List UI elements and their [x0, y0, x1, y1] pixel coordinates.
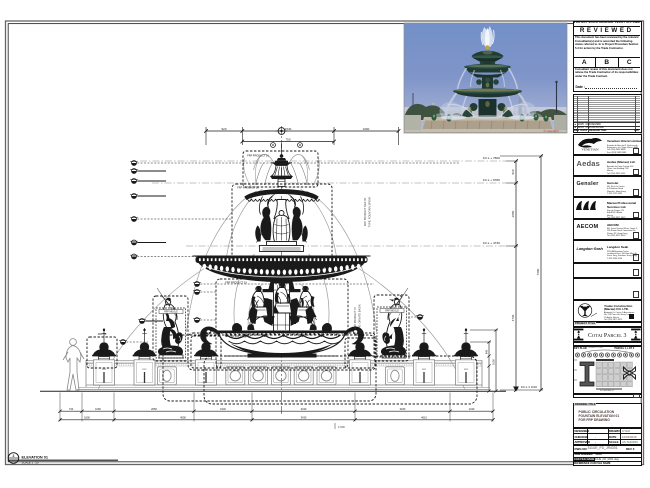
svg-text:TYPE: ORNATE BASIN: TYPE: ORNATE BASIN	[358, 304, 362, 331]
svg-text:2050: 2050	[511, 210, 515, 217]
svg-text:© copyright: © copyright	[543, 129, 558, 133]
svg-text:FRP MOULD: FRP MOULD	[385, 311, 399, 313]
svg-text:FRP: FRP	[422, 369, 427, 371]
svg-text:7600: 7600	[536, 268, 540, 275]
svg-text:FRP 05: FRP 05	[98, 333, 107, 336]
svg-text:1430: 1430	[469, 407, 475, 411]
svg-text:2650: 2650	[151, 407, 157, 411]
svg-text:F.F.L + 6780: F.F.L + 6780	[483, 178, 500, 182]
svg-text:3430: 3430	[301, 407, 307, 411]
svg-text:FRP PRODUCT 06: FRP PRODUCT 06	[229, 336, 251, 339]
svg-text:2: 2	[13, 454, 15, 458]
svg-text:FRP MOULD: FRP MOULD	[164, 312, 178, 314]
svg-text:1060: 1060	[95, 407, 101, 411]
svg-text:4590: 4590	[180, 416, 186, 420]
svg-text:1060: 1060	[363, 127, 370, 131]
svg-text:920: 920	[221, 127, 226, 131]
svg-text:F.F.L ± 0.00: F.F.L ± 0.00	[521, 385, 537, 389]
svg-text:F.F.L + 4730: F.F.L + 4730	[483, 241, 500, 245]
svg-text:SCALE 1 : 50: SCALE 1 : 50	[22, 461, 39, 465]
svg-text:FOUNTAIN 01: FOUNTAIN 01	[600, 389, 615, 392]
svg-text:1800: 1800	[84, 416, 90, 420]
svg-text:17100: 17100	[338, 426, 345, 429]
svg-text:FRP PRODUCT REF 05: FRP PRODUCT REF 05	[363, 197, 367, 226]
svg-text:VENETIAN: VENETIAN	[581, 148, 599, 152]
svg-text:FRP 05: FRP 05	[356, 334, 365, 337]
svg-text:1050: 1050	[492, 359, 496, 365]
svg-text:740: 740	[69, 407, 74, 411]
svg-text:FRP PRODUCT 02: FRP PRODUCT 02	[237, 187, 259, 190]
svg-text:FRP 05: FRP 05	[202, 332, 211, 335]
svg-text:4610: 4610	[421, 416, 427, 420]
svg-text:3430: 3430	[301, 416, 307, 420]
svg-text:1540: 1540	[285, 127, 292, 131]
svg-text:FRP: FRP	[464, 369, 469, 371]
svg-text:840: 840	[485, 349, 489, 354]
svg-text:4730: 4730	[511, 314, 515, 321]
svg-text:TYPE: FOUNTAIN SPRAY: TYPE: FOUNTAIN SPRAY	[368, 196, 372, 227]
svg-text:750: 750	[285, 137, 290, 141]
svg-text:ELEVATION 01: ELEVATION 01	[22, 455, 48, 459]
svg-text:FRP PRODUCT 07: FRP PRODUCT 07	[353, 306, 357, 329]
svg-text:FRP: FRP	[142, 369, 147, 371]
svg-text:820: 820	[511, 169, 515, 174]
svg-text:FRP: FRP	[102, 369, 107, 371]
svg-text:COTAI PARCEL 3: COTAI PARCEL 3	[587, 333, 626, 339]
svg-text:F.F.L + 7600: F.F.L + 7600	[483, 156, 500, 160]
svg-text:FRP PRODUCT 01: FRP PRODUCT 01	[247, 155, 269, 158]
svg-text:3180: 3180	[400, 407, 406, 411]
svg-text:1940: 1940	[220, 407, 226, 411]
